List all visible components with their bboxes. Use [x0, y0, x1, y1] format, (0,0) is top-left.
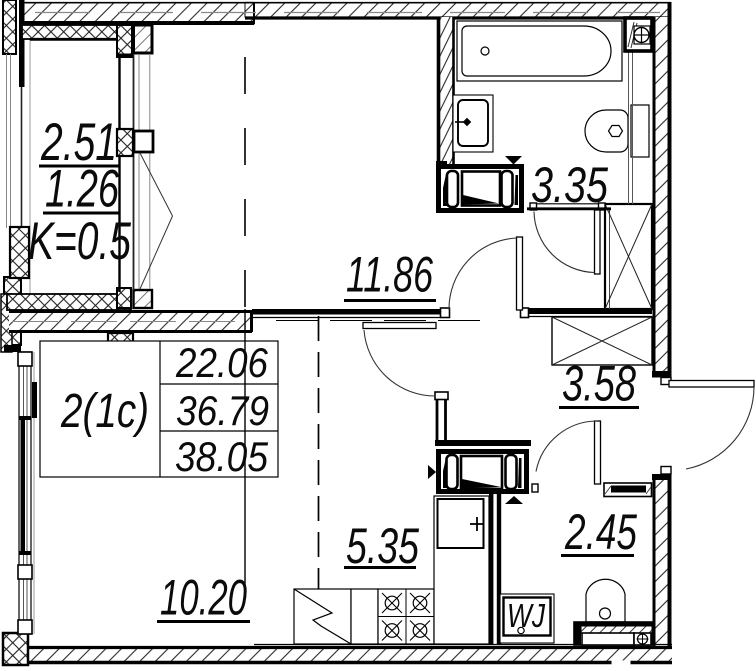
svg-text:1.26: 1.26: [45, 160, 119, 219]
svg-text:36.79: 36.79: [176, 387, 269, 434]
svg-text:5.35: 5.35: [346, 518, 419, 574]
svg-text:3.35: 3.35: [531, 157, 608, 213]
svg-text:11.86: 11.86: [346, 247, 433, 303]
svg-text:2(1c): 2(1c): [60, 385, 149, 438]
svg-text:10.20: 10.20: [160, 570, 247, 626]
svg-text:22.06: 22.06: [175, 339, 268, 386]
svg-text:3.58: 3.58: [562, 356, 636, 412]
svg-text:WJ: WJ: [507, 597, 545, 634]
svg-text:K=0.5: K=0.5: [28, 212, 131, 271]
svg-text:38.05: 38.05: [175, 433, 269, 480]
svg-text:2.45: 2.45: [564, 504, 637, 560]
